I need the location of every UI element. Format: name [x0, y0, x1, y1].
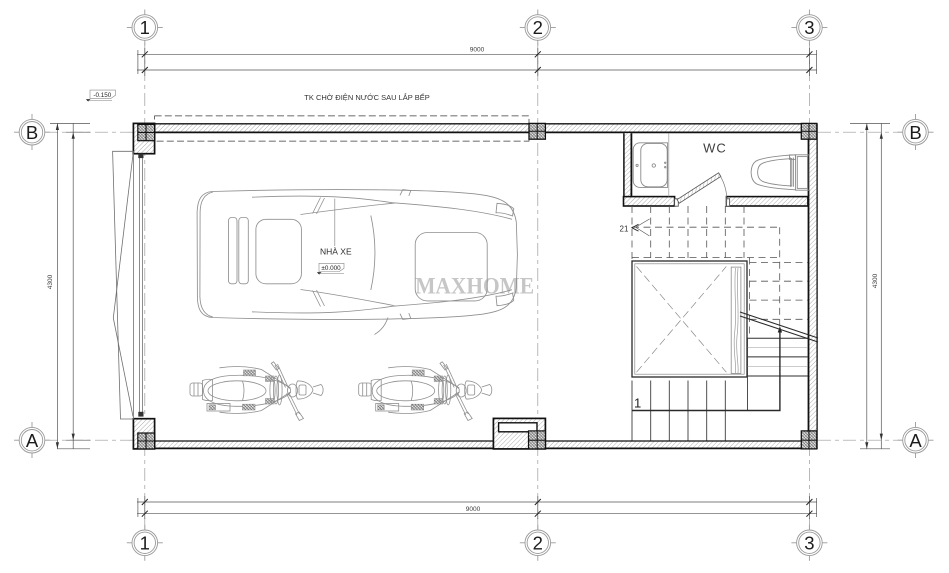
svg-text:1: 1	[140, 17, 150, 38]
svg-text:2: 2	[533, 17, 543, 38]
svg-text:4300: 4300	[872, 273, 879, 288]
svg-text:WC: WC	[703, 141, 727, 156]
svg-text:±0.000: ±0.000	[321, 265, 341, 272]
svg-text:B: B	[909, 122, 921, 143]
svg-text:3: 3	[804, 17, 814, 38]
svg-text:4300: 4300	[47, 274, 54, 289]
svg-text:3: 3	[804, 533, 814, 554]
svg-text:1: 1	[634, 396, 641, 411]
svg-text:-0.150: -0.150	[93, 92, 111, 99]
svg-text:A: A	[909, 430, 922, 451]
svg-text:2: 2	[533, 533, 543, 554]
svg-text:NHÀ XE: NHÀ XE	[320, 247, 352, 257]
svg-text:TK CHỜ ĐIỆN NƯỚC SAU LẮP BẾP: TK CHỜ ĐIỆN NƯỚC SAU LẮP BẾP	[304, 92, 429, 102]
svg-text:B: B	[26, 122, 38, 143]
svg-text:21: 21	[620, 225, 629, 234]
svg-text:1: 1	[140, 533, 150, 554]
svg-text:9000: 9000	[466, 506, 481, 513]
svg-text:A: A	[26, 430, 39, 451]
svg-text:9000: 9000	[470, 47, 485, 54]
